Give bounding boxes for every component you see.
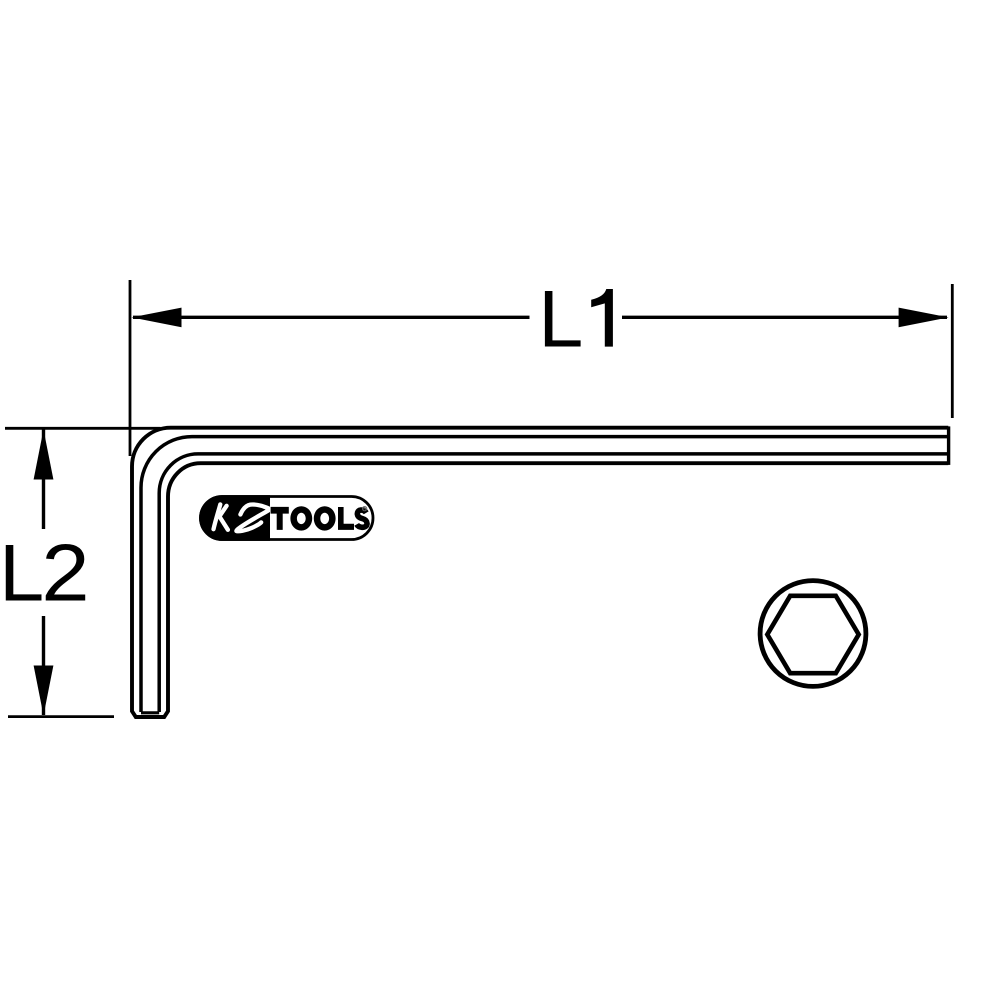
svg-text:2: 2 <box>41 527 89 618</box>
svg-text:L: L <box>538 274 583 364</box>
svg-text:L: L <box>0 529 44 619</box>
